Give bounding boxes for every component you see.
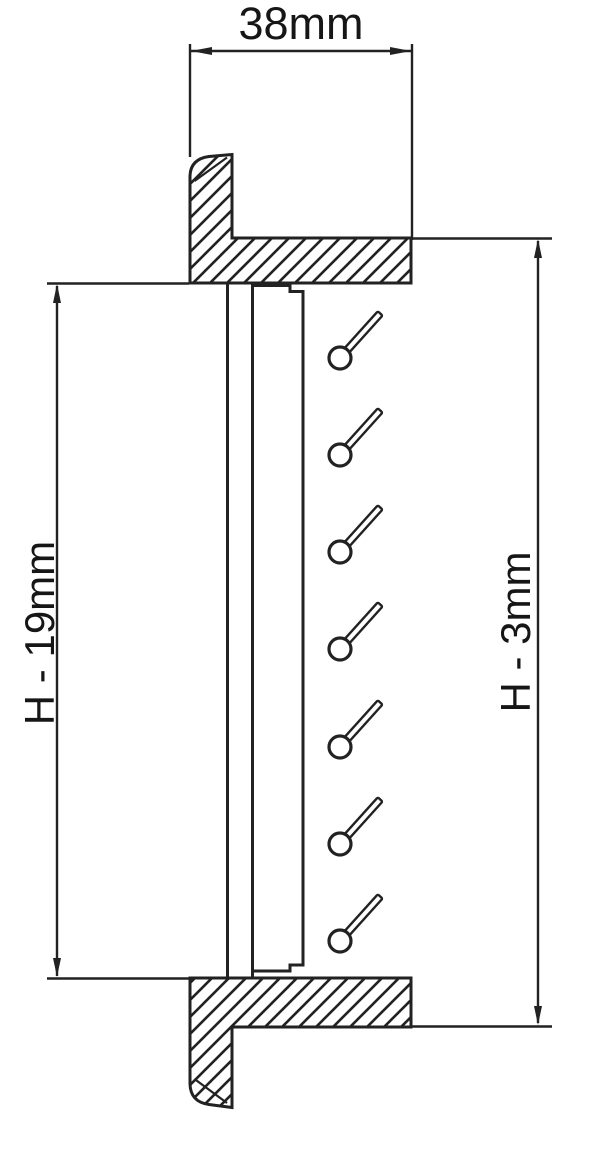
dimension-label-height-right: H - 3mm <box>494 522 538 742</box>
dimension-label-height-left: H - 19mm <box>18 523 62 743</box>
technical-drawing-canvas: 38mm H - 19mm H - 3mm <box>0 0 600 1152</box>
dimension-label-width: 38mm <box>201 0 401 48</box>
